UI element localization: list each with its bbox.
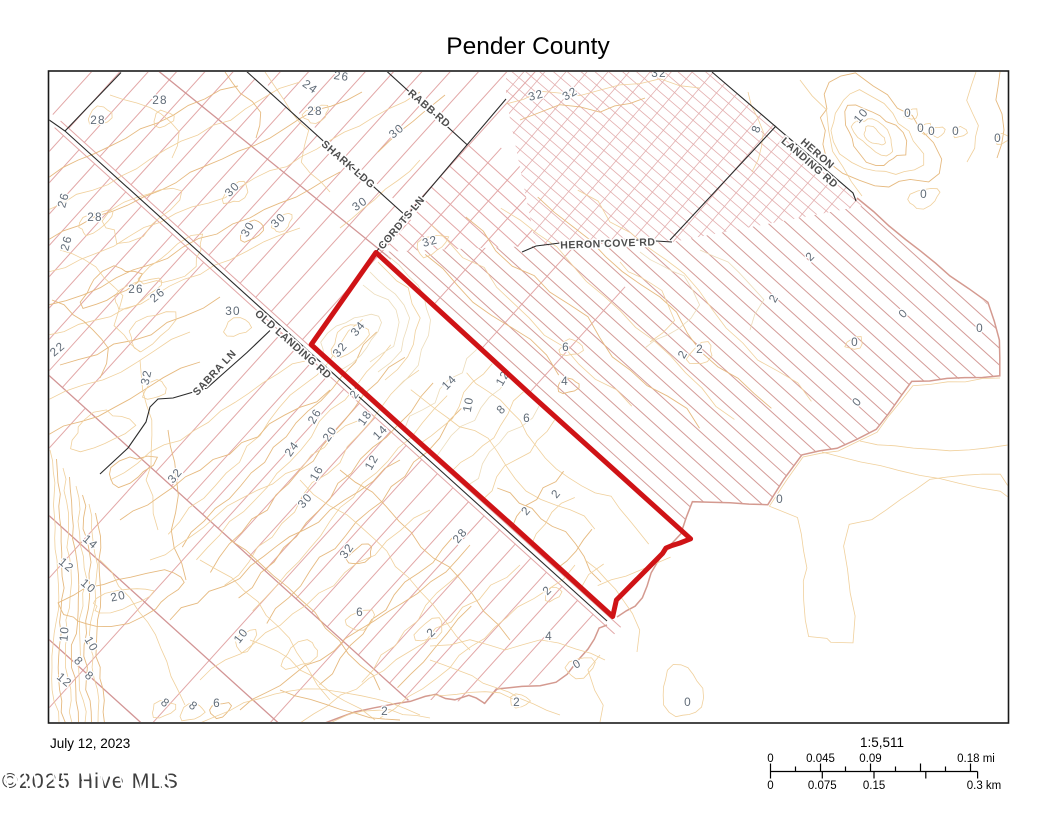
svg-text:0.3 km: 0.3 km [967, 780, 1002, 792]
svg-text:0.045: 0.045 [806, 753, 835, 765]
svg-text:0: 0 [767, 780, 773, 792]
svg-text:0.18 mi: 0.18 mi [957, 753, 995, 765]
svg-text:6: 6 [523, 411, 531, 425]
svg-text:28: 28 [307, 104, 323, 118]
svg-text:0: 0 [952, 124, 960, 138]
svg-text:28: 28 [87, 210, 103, 224]
svg-text:0: 0 [928, 124, 936, 138]
svg-text:0: 0 [917, 121, 925, 135]
svg-text:0.09: 0.09 [859, 753, 881, 765]
svg-text:28: 28 [152, 93, 168, 107]
svg-text:30: 30 [225, 304, 241, 318]
svg-text:1:5,511: 1:5,511 [860, 735, 904, 750]
svg-text:2: 2 [381, 704, 389, 718]
svg-text:0.15: 0.15 [863, 780, 885, 792]
svg-text:0: 0 [851, 335, 859, 349]
svg-text:0: 0 [994, 131, 1002, 145]
svg-text:Pender County: Pender County [446, 33, 610, 60]
svg-text:10: 10 [460, 395, 476, 413]
svg-text:2: 2 [513, 695, 521, 709]
svg-text:2: 2 [696, 342, 704, 356]
svg-text:0: 0 [904, 106, 912, 120]
svg-text:26: 26 [128, 282, 144, 296]
svg-text:0: 0 [920, 187, 928, 201]
svg-text:6: 6 [562, 340, 570, 354]
svg-text:0: 0 [776, 492, 784, 506]
svg-text:4: 4 [545, 629, 553, 643]
svg-text:0: 0 [684, 695, 692, 709]
svg-text:0.075: 0.075 [808, 780, 837, 792]
svg-text:28: 28 [90, 113, 106, 127]
svg-text:10: 10 [56, 625, 71, 642]
svg-text:0: 0 [976, 321, 984, 335]
svg-text:July 12, 2023: July 12, 2023 [50, 736, 130, 751]
svg-text:4: 4 [561, 374, 569, 388]
svg-text:0: 0 [767, 753, 773, 765]
svg-text:6: 6 [213, 696, 221, 710]
svg-text:6: 6 [356, 605, 364, 619]
